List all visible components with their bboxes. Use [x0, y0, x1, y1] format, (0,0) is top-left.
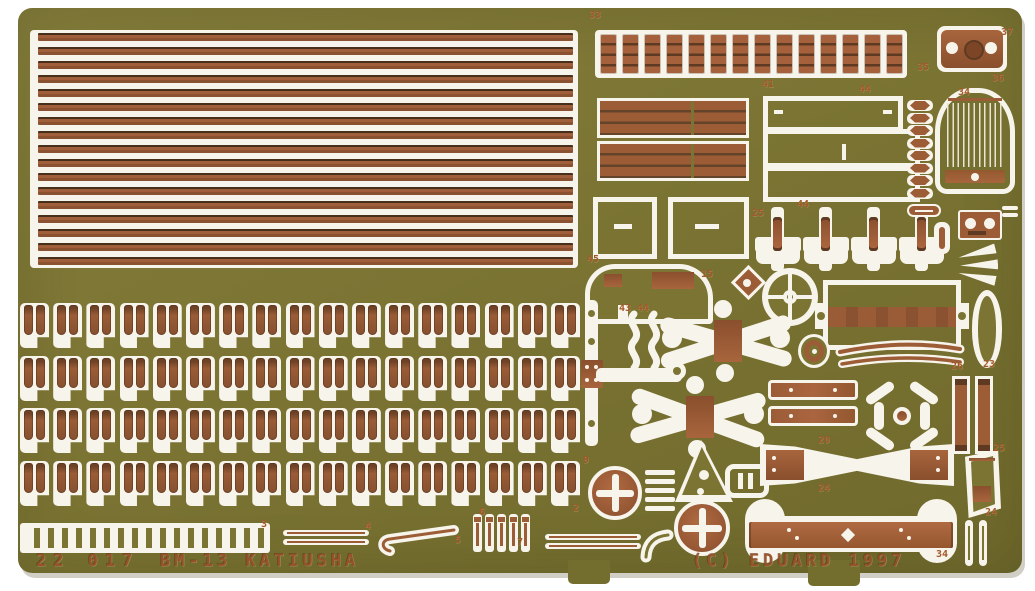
spring-clip-part	[153, 303, 182, 348]
spring-clip-part	[120, 356, 149, 401]
etch-bar	[748, 473, 753, 489]
etch-hole	[588, 310, 595, 317]
pin-row	[473, 514, 533, 552]
copper-bar	[773, 217, 782, 251]
copper-hub	[897, 411, 907, 421]
hub-detail	[964, 40, 984, 60]
etch-hole	[662, 328, 682, 348]
tread-rung	[755, 35, 770, 73]
two-hole-plate-part	[958, 210, 1002, 240]
spring-clip-part	[219, 356, 248, 401]
rivet-dot	[936, 456, 940, 460]
pin-part	[473, 514, 482, 552]
mount-tab	[815, 303, 828, 329]
spring-clip-part	[53, 461, 82, 506]
radiator-fins	[947, 103, 1003, 167]
wedge-part	[960, 259, 998, 270]
etch-interior	[971, 456, 995, 512]
etch-hole	[744, 404, 764, 424]
etch-hole	[958, 312, 966, 320]
copper-end-plate	[766, 450, 804, 480]
launch-rail-strip	[38, 159, 573, 167]
spring-clip-part	[485, 356, 514, 401]
radiator-top-bar	[948, 98, 1002, 101]
fret-tab	[568, 560, 610, 584]
etch-hole	[588, 420, 595, 427]
copper-bar	[917, 217, 926, 251]
launch-rail-strip	[38, 103, 573, 111]
spring-clip-part	[418, 461, 447, 506]
etch-arm	[756, 251, 800, 264]
spring-clip-part	[485, 408, 514, 453]
spring-clip-part	[286, 303, 315, 348]
spring-clip-part	[219, 461, 248, 506]
square-frame-part	[593, 197, 657, 259]
etch-hole	[632, 404, 652, 424]
etch-mark	[614, 224, 632, 229]
launch-rail-strip	[38, 229, 573, 237]
copper-band	[828, 307, 956, 327]
spring-clip-part	[352, 408, 381, 453]
spring-clip-part	[86, 461, 115, 506]
spring-clip-part	[518, 356, 547, 401]
pin-part	[521, 514, 530, 552]
spring-clip-part	[286, 461, 315, 506]
clip-row	[20, 303, 586, 349]
spring-clip-part	[53, 303, 82, 348]
twin-bar-part	[965, 520, 991, 568]
wedge-part	[957, 244, 996, 263]
rivet-bead-column	[907, 100, 933, 200]
running-board-part	[597, 98, 749, 138]
spring-clip-part	[20, 461, 49, 506]
small-bar-part	[645, 479, 675, 484]
etch-hole	[714, 300, 732, 318]
copyright-text: (C) EDUARD 1997	[692, 551, 906, 571]
small-bar-part	[1002, 206, 1018, 210]
rod-part	[545, 543, 641, 549]
fan-disc-part	[674, 500, 730, 556]
small-bar-part	[645, 488, 675, 493]
launch-rail-strip	[38, 173, 573, 181]
spring-clip-part	[518, 408, 547, 453]
rivet-bead-part	[907, 163, 933, 174]
rivet-dot	[899, 528, 903, 532]
launch-rail-strip	[38, 61, 573, 69]
copper-patch	[652, 272, 694, 289]
tread-plate-strip	[595, 30, 907, 78]
copper-bar	[869, 217, 878, 251]
spring-clip-part	[485, 461, 514, 506]
launch-rail-strip	[38, 201, 573, 209]
spring-clip-part	[418, 408, 447, 453]
rivet-bead-part	[907, 175, 933, 186]
spring-clip-part	[219, 303, 248, 348]
spring-clip-part	[485, 303, 514, 348]
spring-clip-part	[20, 408, 49, 453]
tread-rung	[667, 35, 682, 73]
clip-row	[20, 356, 586, 402]
etch-slot	[618, 305, 628, 319]
pin-part	[509, 514, 518, 552]
running-board-part	[597, 141, 749, 181]
rod-part	[283, 539, 369, 545]
radiator-grille-part	[935, 88, 1015, 194]
rivet-bead-part	[907, 188, 933, 199]
spring-clip-part	[186, 303, 215, 348]
cross-bracket-part	[803, 205, 849, 275]
spring-clip-part	[385, 408, 414, 453]
etch-hole	[697, 488, 704, 495]
copper-patch	[604, 274, 622, 287]
etch-mark	[774, 110, 783, 114]
spring-clip-part	[120, 408, 149, 453]
spring-clip-part	[53, 408, 82, 453]
oval-ring-part	[972, 290, 1002, 368]
rod-part	[545, 534, 641, 540]
etch-hole	[743, 279, 751, 287]
rivet-bead-part	[907, 150, 933, 161]
tread-rung	[887, 35, 902, 73]
spring-clip-part	[352, 461, 381, 506]
copper-end-plate	[910, 450, 948, 480]
wedge-fan-part	[956, 248, 1002, 284]
wedge-part	[957, 268, 996, 286]
etch-hole	[699, 470, 709, 480]
spring-clip-part	[252, 356, 281, 401]
rivet-dot	[907, 536, 911, 540]
copper-patch	[973, 486, 991, 502]
spring-clip-part	[319, 303, 348, 348]
etch-mark	[842, 144, 846, 160]
etch-bar	[979, 520, 987, 566]
etch-hole	[770, 328, 790, 348]
launch-rail-strip	[38, 117, 573, 125]
rivet-bead-part	[907, 113, 933, 124]
set-number-text: 22 017	[36, 551, 139, 571]
etch-arm	[920, 402, 930, 430]
launch-rail-strip-block	[30, 30, 578, 268]
engine-plate-part	[823, 280, 961, 350]
tread-rung	[711, 35, 726, 73]
frame-part	[763, 129, 920, 168]
etch-bar	[738, 473, 743, 489]
spring-clip-part	[252, 461, 281, 506]
tread-rung	[601, 35, 616, 73]
spring-clip-part	[451, 303, 480, 348]
spring-clip-part	[352, 303, 381, 348]
pin-part	[485, 514, 494, 552]
launch-rail-strip	[38, 145, 573, 153]
small-bar-stack	[645, 470, 675, 515]
spring-clip-part	[86, 408, 115, 453]
spring-clip-part	[551, 356, 580, 401]
tread-rung	[865, 35, 880, 73]
launch-rail-strip	[38, 243, 573, 251]
clip-row	[20, 408, 586, 454]
spring-clip-part	[120, 303, 149, 348]
spring-clip-part	[551, 461, 580, 506]
rivet-dot	[795, 536, 799, 540]
spring-clip-part	[219, 408, 248, 453]
etch-hole	[946, 42, 958, 54]
frame-part	[763, 96, 903, 132]
etch-arm	[874, 402, 884, 430]
spring-clip-part	[518, 303, 547, 348]
etch-hole	[985, 42, 997, 54]
scanned-photo-etch-sheet: 22 017 BM-13 KATIUSHA (C) EDUARD 1997 33…	[0, 0, 1035, 591]
spring-clip-part	[86, 356, 115, 401]
spring-clip-part	[286, 356, 315, 401]
rod-part	[283, 530, 369, 536]
rivet-dot	[787, 528, 791, 532]
spring-clip-part	[385, 356, 414, 401]
spring-clip-part	[418, 303, 447, 348]
launch-rail-strip	[38, 187, 573, 195]
cross-bracket-part	[755, 205, 801, 275]
spring-clip-part	[451, 356, 480, 401]
copper-plate	[686, 396, 714, 438]
small-bar-part	[645, 497, 675, 502]
etch-hole	[984, 218, 995, 229]
pin-part	[497, 514, 506, 552]
spring-clip-part	[186, 356, 215, 401]
tread-rung	[733, 35, 748, 73]
spring-clip-part	[186, 461, 215, 506]
bracket-plate-part	[937, 26, 1007, 72]
small-bar-part	[645, 506, 675, 511]
etch-arm	[852, 251, 896, 264]
spring-clip-part	[153, 461, 182, 506]
etch-hole	[817, 312, 825, 320]
spring-clip-part	[86, 303, 115, 348]
rivet-bead-part	[907, 138, 933, 149]
spring-clip-part	[286, 408, 315, 453]
spring-clip-part	[53, 356, 82, 401]
launch-rail-strip	[38, 215, 573, 223]
clip-row	[20, 461, 586, 507]
rivet-dot	[772, 468, 776, 472]
frame-part	[763, 166, 920, 202]
etch-hole	[686, 376, 704, 394]
launch-rail-strip	[38, 33, 573, 41]
rivet-bead-part	[907, 100, 933, 111]
etch-mark	[695, 224, 719, 229]
etch-hole	[971, 173, 979, 181]
spring-clip-part	[352, 356, 381, 401]
tread-rung	[645, 35, 660, 73]
tread-rung	[623, 35, 638, 73]
spring-clip-part	[153, 356, 182, 401]
photo-etch-fret: 22 017 BM-13 KATIUSHA (C) EDUARD 1997	[18, 8, 1022, 573]
fan-disc-part	[588, 466, 642, 520]
tread-rung	[821, 35, 836, 73]
comb-strip-part	[20, 523, 270, 553]
copper-bar	[821, 217, 830, 251]
spring-clip-part	[319, 461, 348, 506]
spring-clip-part	[551, 408, 580, 453]
spring-clip-part	[153, 408, 182, 453]
tread-rung	[689, 35, 704, 73]
launch-rail-strip	[38, 257, 573, 265]
spring-clip-part	[385, 303, 414, 348]
funnel-plate-part	[965, 450, 1001, 518]
spring-clip-part	[385, 461, 414, 506]
copper-bar-part	[952, 376, 970, 454]
spring-clip-part	[319, 408, 348, 453]
etch-hole	[588, 338, 595, 345]
small-bar-part	[645, 470, 675, 475]
tread-rung	[799, 35, 814, 73]
launch-rail-strip	[38, 75, 573, 83]
spring-clip-part	[120, 461, 149, 506]
small-pin-part	[934, 222, 950, 254]
tread-rung	[777, 35, 792, 73]
butterfly-bracket-part	[862, 374, 942, 458]
set-name-text: BM-13 KATIUSHA	[160, 551, 359, 571]
spring-clip-part	[551, 303, 580, 348]
copper-patch	[969, 458, 995, 461]
launch-rail-strip	[38, 89, 573, 97]
etch-bar	[965, 520, 973, 566]
launch-rail-strip	[38, 47, 573, 55]
lozenge-part	[907, 204, 941, 217]
square-frame-part	[668, 197, 749, 259]
cross-bracket-part	[851, 205, 897, 275]
rivet-bead-part	[907, 125, 933, 136]
rivet-dot	[772, 456, 776, 460]
spring-clip-part	[319, 356, 348, 401]
spring-clip-part	[451, 461, 480, 506]
mount-tab	[956, 303, 969, 329]
spring-clip-part	[518, 461, 547, 506]
spring-clip-part	[252, 303, 281, 348]
spring-clip-part	[20, 303, 49, 348]
etch-hole	[965, 218, 976, 229]
copper-bar-part	[975, 376, 993, 454]
spring-clip-part	[20, 356, 49, 401]
rivet-dot	[936, 468, 940, 472]
spring-clip-part	[186, 408, 215, 453]
spring-clip-part	[252, 408, 281, 453]
ring-fitting-part	[798, 334, 830, 368]
launch-rail-strip	[38, 131, 573, 139]
etch-arm	[804, 251, 848, 264]
axle-beam-part	[760, 444, 954, 486]
tread-rung	[843, 35, 858, 73]
etch-mark	[883, 110, 892, 114]
leaf-spring-part	[768, 406, 858, 426]
small-bar-part	[1002, 213, 1018, 217]
spring-clip-part	[451, 408, 480, 453]
spring-clip-part	[418, 356, 447, 401]
copper-plate	[714, 320, 742, 362]
